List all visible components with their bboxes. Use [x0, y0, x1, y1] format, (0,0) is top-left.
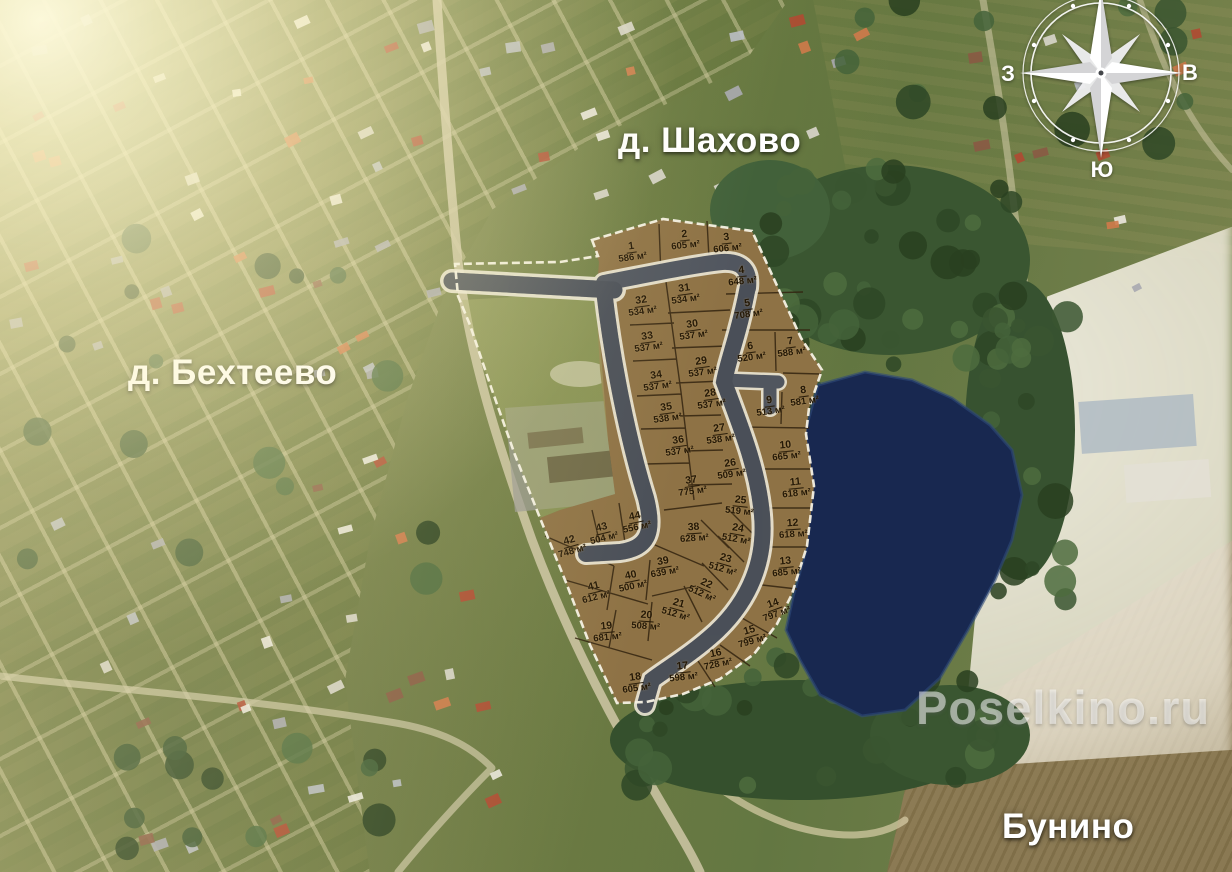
plot-label-28: 28537 м²	[695, 386, 726, 412]
plot-label-37: 37775 м²	[676, 473, 707, 499]
plot-label-32: 32534 м²	[626, 293, 657, 319]
plot-label-31: 31534 м²	[669, 281, 700, 307]
plot-label-24: 24512 м²	[721, 521, 753, 548]
plot-label-18: 18605 м²	[620, 670, 651, 696]
plot-label-9: 9513 м²	[754, 393, 785, 419]
plot-label-41: 41612 м²	[578, 578, 611, 606]
village-label-bunino: Бунино	[1002, 807, 1134, 847]
plot-label-27: 27538 м²	[704, 421, 735, 447]
plot-label-36: 36537 м²	[663, 433, 694, 459]
plot-label-44: 44556 м²	[620, 508, 653, 535]
plot-label-26: 26509 м²	[715, 456, 746, 482]
satellite-masterplan-map: З В Ю 1586 м²2605 м²3606 м²4648 м²5708 м…	[0, 0, 1232, 872]
plot-label-43: 43504 м²	[586, 519, 619, 547]
plot-label-40: 40500 м²	[616, 567, 649, 594]
plot-label-16: 16728 м²	[701, 645, 734, 672]
plot-label-7: 7588 м²	[775, 334, 806, 360]
plot-label-19: 19681 м²	[592, 620, 623, 645]
plot-label-38: 38628 м²	[679, 521, 709, 545]
plot-label-22: 22512 м²	[686, 573, 721, 605]
plot-label-15: 15799 м²	[734, 621, 768, 650]
plot-label-5: 5708 м²	[732, 296, 763, 322]
plot-label-11: 11618 м²	[781, 476, 812, 501]
plot-label-6: 6520 м²	[735, 339, 766, 365]
plot-label-10: 10665 м²	[771, 439, 802, 464]
plot-label-30: 30537 м²	[677, 317, 708, 343]
plot-label-34: 34537 м²	[641, 368, 672, 394]
village-label-bekhteevo: д. Бехтеево	[128, 353, 337, 393]
watermark-text: Poselkino.ru	[916, 680, 1210, 735]
plot-label-14: 14797 м²	[758, 594, 792, 624]
plot-label-20: 20508 м²	[631, 609, 661, 633]
plot-label-42: 42748 м²	[554, 531, 588, 560]
plot-label-39: 39639 м²	[648, 554, 680, 581]
plot-label-2: 2605 м²	[670, 228, 701, 253]
plot-label-23: 23512 м²	[707, 549, 741, 578]
plot-label-33: 33537 м²	[632, 329, 663, 355]
plot-label-3: 3606 м²	[712, 231, 743, 256]
plot-label-29: 29537 м²	[686, 354, 717, 380]
plot-labels-layer: 1586 м²2605 м²3606 м²4648 м²5708 м²6520 …	[0, 0, 1232, 872]
plot-label-1: 1586 м²	[616, 239, 647, 265]
plot-label-35: 35538 м²	[651, 400, 682, 426]
plot-label-12: 12618 м²	[778, 517, 808, 541]
plot-label-25: 25519 м²	[725, 494, 756, 519]
plot-label-13: 13685 м²	[771, 555, 802, 580]
village-label-shahovo: д. Шахово	[618, 121, 801, 161]
plot-label-21: 21512 м²	[660, 594, 694, 623]
plot-label-17: 17598 м²	[668, 660, 699, 685]
plot-label-8: 8581 м²	[788, 383, 819, 409]
plot-label-4: 4648 м²	[727, 264, 758, 289]
